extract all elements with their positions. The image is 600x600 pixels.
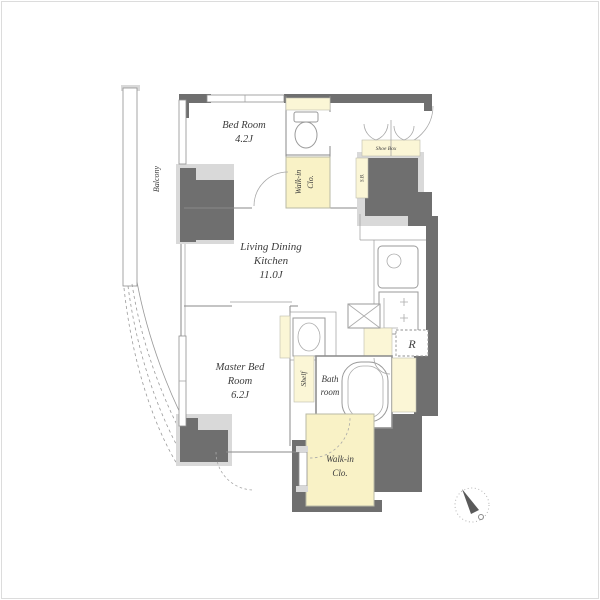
bath-room-label-1: Bath (322, 374, 339, 384)
floor-plan-drawing: Balcony (0, 0, 600, 600)
kitchen: R (364, 246, 428, 358)
washroom-strip (280, 316, 290, 358)
bath-side-strip (392, 358, 416, 412)
closet-door-leaf (299, 452, 307, 486)
master-bed-room-label-2: Room (227, 376, 253, 387)
shelf: Shelf (294, 356, 314, 402)
walk-in-closet-upper-label-2: Clo. (306, 175, 315, 189)
compass-tail (479, 515, 484, 520)
toilet-room (286, 98, 330, 148)
walk-in-closet-upper-label-1: Walk-in (294, 170, 303, 195)
toilet-shelf-strip (286, 98, 330, 110)
walk-in-closet-lower-label-2: Clo. (332, 468, 347, 478)
bedroom-top-window (207, 95, 284, 102)
balcony-curve-4 (124, 288, 177, 464)
bed-room-size: 4.2J (235, 134, 254, 145)
balcony-label: Balcony (152, 165, 161, 192)
pillar-left-bar (180, 168, 196, 242)
closet-door-jamb-bottom (296, 486, 308, 492)
shoe-box-label: Shoe Box (376, 146, 397, 152)
bath-room-label-2: room (321, 387, 340, 397)
pillar-left-core (196, 180, 234, 240)
master-bed-room-label-1: Master Bed (215, 362, 265, 373)
ldk-size: 11.0J (259, 269, 283, 281)
toilet-bowl-icon (295, 122, 317, 148)
north-compass-icon (455, 488, 489, 522)
pillar-bottom-core (180, 430, 228, 462)
balcony-railing (123, 88, 137, 286)
walk-in-closet-upper: Walk-in Clo. (286, 157, 330, 208)
cabinet-swing-left-icon (364, 124, 388, 140)
shelf-label: Shelf (299, 371, 308, 387)
closet-door-jamb-top (296, 446, 308, 452)
entrance-corner (424, 94, 432, 111)
ldk-label-1: Living Dining (239, 241, 302, 253)
refrigerator-label: R (407, 337, 416, 351)
kitchen-side-strip (364, 328, 392, 358)
floor-plan: Balcony (0, 0, 600, 600)
toilet-icon (294, 112, 318, 122)
master-bed-room-size: 6.2J (231, 390, 250, 401)
bedroom-side-window (179, 100, 186, 164)
right-wall-lower (414, 350, 438, 416)
balcony-curve-3 (128, 286, 181, 453)
storage-strip-label: S.B. (361, 174, 366, 182)
cabinet-swing-right-icon (394, 126, 414, 140)
compass-needle (462, 489, 479, 514)
walk-in-closet-lower-label-1: Walk-in (326, 454, 354, 464)
walk-in-closet-lower: Walk-in Clo. (296, 414, 374, 506)
ldk-label-2: Kitchen (253, 255, 289, 267)
bed-room-label: Bed Room (222, 120, 266, 131)
bedroom-door-arc (254, 172, 288, 206)
